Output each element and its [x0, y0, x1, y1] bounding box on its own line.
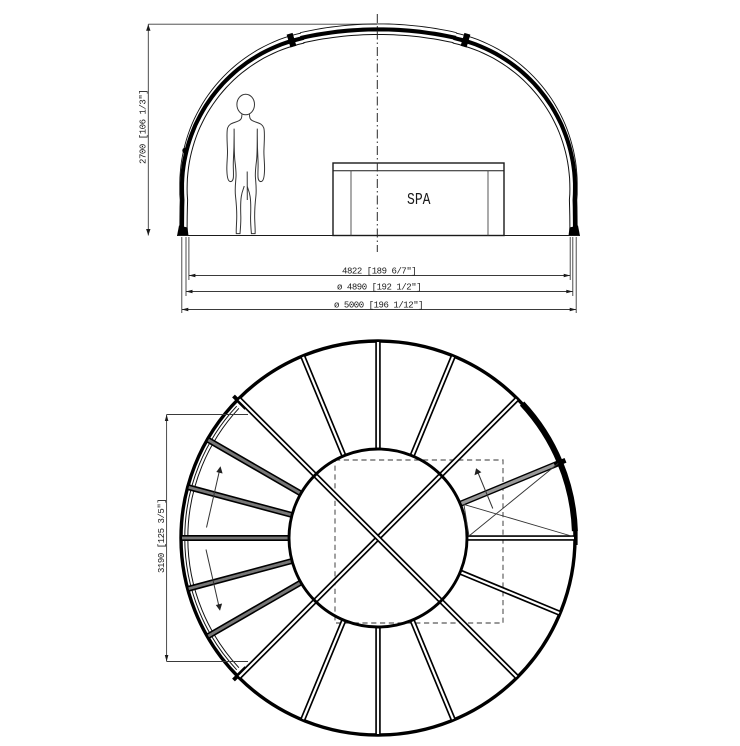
svg-text:ø 5000 [196 1/12"]: ø 5000 [196 1/12"] — [334, 300, 423, 310]
svg-text:4822 [189 6/7"]: 4822 [189 6/7"] — [342, 266, 416, 276]
svg-text:SPA: SPA — [407, 191, 431, 210]
svg-text:3190 [125 3/5"]: 3190 [125 3/5"] — [157, 499, 167, 573]
svg-text:ø 4890 [192 1/2"]: ø 4890 [192 1/2"] — [337, 282, 421, 292]
svg-text:2700 [106 1/3"]: 2700 [106 1/3"] — [139, 90, 149, 164]
